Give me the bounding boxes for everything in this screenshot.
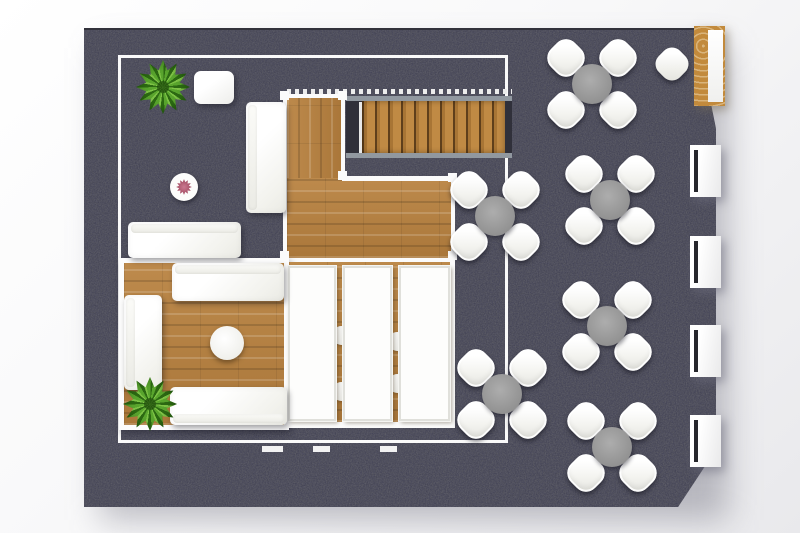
dining-table <box>475 196 515 236</box>
wall-post <box>280 251 289 260</box>
sofa-room-left <box>124 295 162 390</box>
dining-set-2 <box>439 160 551 272</box>
sofa-back-cushion <box>175 265 281 274</box>
wall-bench-1 <box>690 145 721 197</box>
dining-set-3 <box>554 144 666 256</box>
sofa-window <box>246 102 286 213</box>
sofa-back-cushion <box>126 298 135 387</box>
wall-bench-3 <box>690 325 721 377</box>
sofa-back-cushion <box>173 414 284 423</box>
dining-table <box>592 427 632 467</box>
wall-post <box>338 91 347 100</box>
dining-set-4 <box>551 270 663 382</box>
floor-plan-scene <box>0 0 800 533</box>
long-table-2 <box>343 266 392 421</box>
wall-post <box>338 171 347 180</box>
dining-table <box>590 180 630 220</box>
flower-bouquet <box>176 179 192 195</box>
sofa-room-bottom <box>170 387 287 425</box>
stair-handrail-bottom <box>346 153 512 158</box>
dining-table <box>482 374 522 414</box>
long-table-1 <box>288 266 336 421</box>
glass-partition-hatch <box>287 89 512 94</box>
wood-landing-strip <box>283 94 345 182</box>
sofa-back-cushion <box>248 105 257 210</box>
dining-table <box>587 306 627 346</box>
bar-counter <box>694 26 725 106</box>
bar-counter-top <box>708 30 723 102</box>
dining-set-1 <box>536 28 648 140</box>
dining-set-6 <box>556 391 668 503</box>
wood-platform <box>283 178 455 262</box>
long-table-3 <box>399 266 450 421</box>
ottoman <box>194 71 234 104</box>
wall-bench-4 <box>690 415 721 467</box>
dining-table <box>572 64 612 104</box>
staircase-treads <box>362 101 505 153</box>
sofa-back-cushion <box>131 224 238 233</box>
wall-bench-2 <box>690 236 721 288</box>
dining-set-5 <box>446 338 558 450</box>
floor-tick <box>262 446 283 452</box>
sofa-lounge-outer <box>128 222 241 258</box>
sofa-room-top <box>172 263 284 301</box>
wall-post <box>280 91 289 100</box>
floor-tick <box>313 446 330 452</box>
floor-tick <box>380 446 397 452</box>
flower-table <box>170 173 198 201</box>
coffee-table <box>210 326 244 360</box>
